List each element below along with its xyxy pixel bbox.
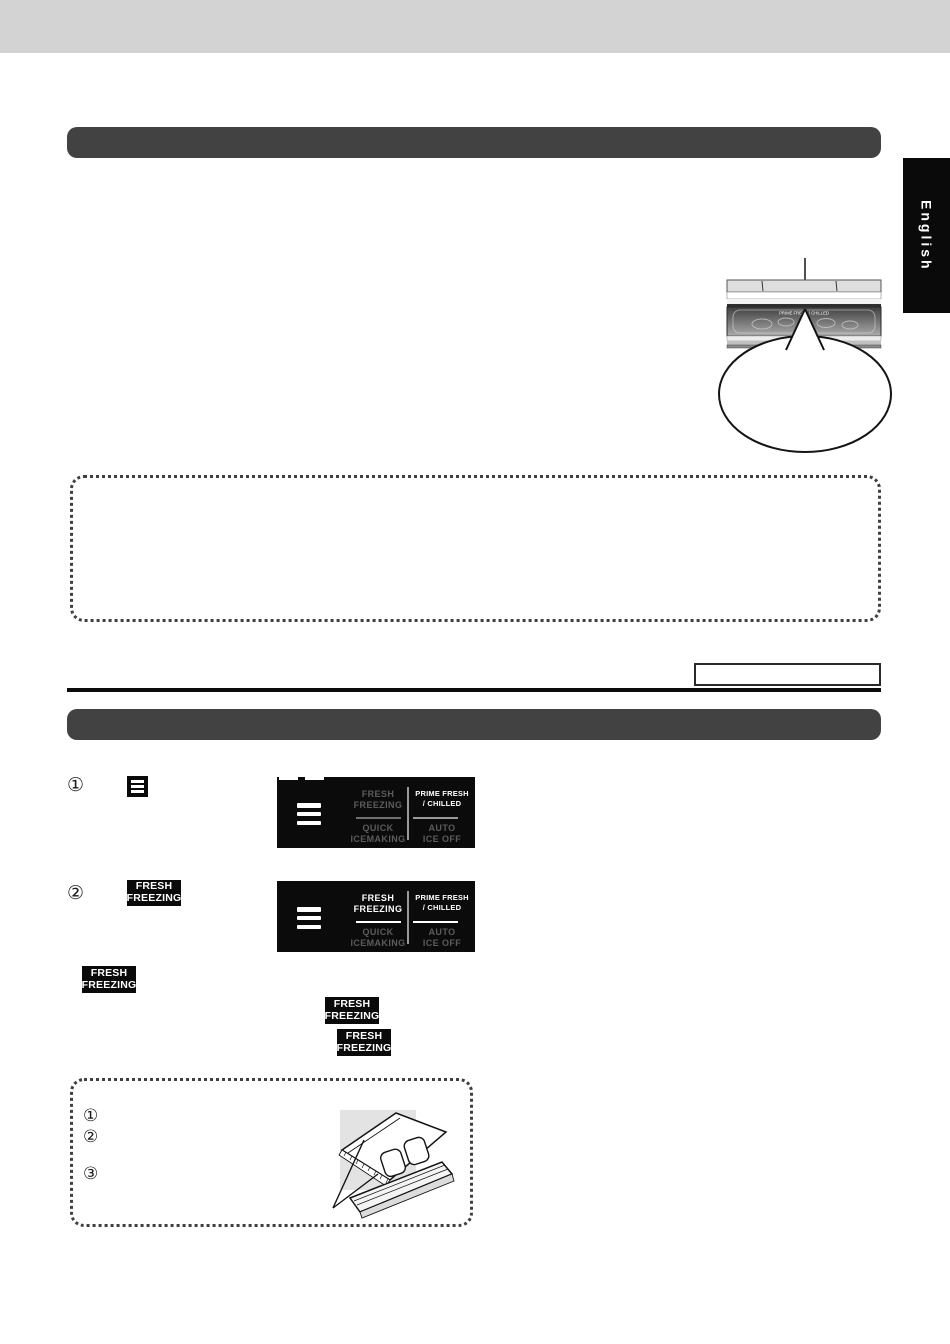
language-tab-label: English: [919, 200, 935, 272]
button-fresh-freezing: FRESH FREEZING: [347, 789, 409, 812]
language-tab: English: [903, 158, 950, 313]
button-fresh-freezing: FRESH FREEZING: [347, 893, 409, 916]
top-gray-bar: [0, 0, 950, 53]
panel-separator: [413, 817, 458, 819]
button-auto-ice-off: AUTO ICE OFF: [411, 927, 473, 950]
fresh-freezing-badge: FRESH FREEZING: [82, 966, 136, 993]
menu-button-icon-small: [127, 776, 148, 797]
button-auto-ice-off: AUTO ICE OFF: [411, 823, 473, 846]
fresh-freezing-badge: FRESH FREEZING: [325, 997, 379, 1024]
control-panel-step-2: FRESH FREEZING PRIME FRESH / CHILLED QUI…: [277, 881, 475, 952]
fridge-callout-illustration: PRIME FRESH / CHILLED: [700, 250, 900, 462]
section-divider-line: [67, 688, 881, 692]
step-2-number: ②: [67, 884, 84, 903]
manual-page: English PRIME FRESH / CHILLED: [0, 0, 950, 1344]
section-header-bar-2: [67, 709, 881, 740]
ice-drawer-illustration: [330, 1100, 466, 1222]
panel-top-notch: [305, 774, 324, 780]
control-panel-step-1: FRESH FREEZING PRIME FRESH / CHILLED QUI…: [277, 777, 475, 848]
button-quick-icemaking: QUICK ICEMAKING: [347, 823, 409, 846]
button-prime-fresh-chilled: PRIME FRESH / CHILLED: [411, 789, 473, 809]
panel-separator: [356, 921, 401, 923]
button-prime-fresh-chilled: PRIME FRESH / CHILLED: [411, 893, 473, 913]
note-item-1-number: ①: [83, 1108, 98, 1125]
hamburger-menu-icon: [297, 803, 321, 825]
note-item-3-number: ③: [83, 1166, 98, 1183]
fresh-freezing-badge: FRESH FREEZING: [337, 1029, 391, 1056]
note-item-2-number: ②: [83, 1129, 98, 1146]
panel-top-notch: [279, 774, 298, 780]
panel-separator: [356, 817, 401, 819]
note-box-1: [70, 475, 881, 622]
hamburger-menu-icon: [297, 907, 321, 929]
fresh-freezing-badge: FRESH FREEZING: [127, 880, 181, 906]
reference-box: [694, 663, 881, 686]
button-quick-icemaking: QUICK ICEMAKING: [347, 927, 409, 950]
section-header-bar-1: [67, 127, 881, 158]
panel-separator: [413, 921, 458, 923]
step-1-number: ①: [67, 776, 84, 795]
